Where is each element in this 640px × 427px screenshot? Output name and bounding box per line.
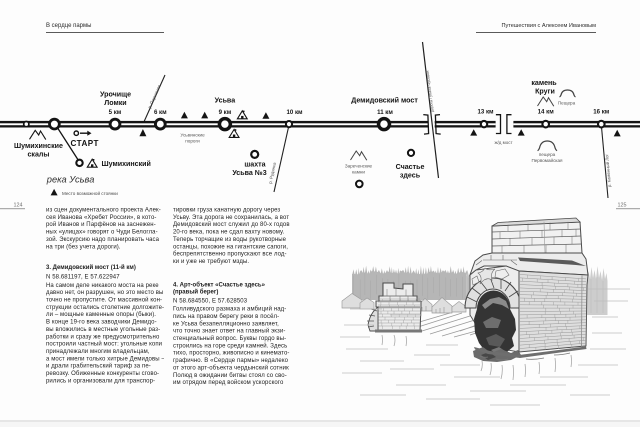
svg-text:Шумихинский: Шумихинский [102, 160, 151, 168]
svg-text:9 км: 9 км [219, 109, 232, 116]
svg-text:13 км: 13 км [477, 109, 494, 116]
svg-text:Урочище: Урочище [100, 91, 131, 99]
svg-text:скалы: скалы [27, 150, 49, 158]
svg-text:Демидовский мост: Демидовский мост [351, 97, 418, 105]
svg-text:16 км: 16 км [593, 109, 610, 116]
svg-text:Усьва: Усьва [215, 97, 236, 105]
svg-text:Место возможной стоянки: Место возможной стоянки [62, 190, 118, 196]
svg-text:пороги: пороги [185, 139, 200, 144]
svg-text:р. Каменный Лог: р. Каменный Лог [604, 153, 612, 187]
svg-text:14 км: 14 км [538, 109, 555, 116]
svg-text:Круги: Круги [535, 88, 555, 96]
svg-text:Усьвинские: Усьвинские [180, 132, 205, 137]
svg-text:6 км: 6 км [154, 109, 167, 116]
svg-text:Шумихинские: Шумихинские [14, 142, 63, 150]
svg-text:Первомайская: Первомайская [531, 157, 563, 163]
svg-text:шахта: шахта [244, 161, 265, 169]
svg-text:р. Порожняя: р. Порожняя [147, 84, 162, 110]
svg-text:пещера: пещера [539, 152, 556, 157]
svg-text:камни: камни [352, 170, 365, 175]
svg-text:СТАРТ: СТАРТ [71, 139, 99, 148]
svg-text:Усьва №3: Усьва №3 [232, 169, 266, 177]
svg-text:река Усьва: река Усьва [46, 175, 95, 185]
svg-text:Зареченские: Зареченские [345, 164, 373, 169]
svg-text:10 км: 10 км [286, 109, 303, 116]
svg-text:дорога Губаха-Чусовой: дорога Губаха-Чусовой [425, 70, 435, 112]
svg-text:Счастье: Счастье [396, 163, 425, 171]
svg-text:124: 124 [14, 202, 23, 208]
svg-text:р. Рудянка: р. Рудянка [268, 161, 278, 184]
svg-text:камень: камень [531, 79, 557, 87]
svg-text:здесь: здесь [400, 171, 421, 179]
svg-text:ж/д мост: ж/д мост [494, 140, 512, 145]
svg-text:5 км: 5 км [109, 109, 122, 116]
svg-text:Пещера: Пещера [558, 101, 576, 106]
svg-text:11 км: 11 км [377, 109, 393, 116]
svg-text:Ломки: Ломки [104, 99, 126, 107]
